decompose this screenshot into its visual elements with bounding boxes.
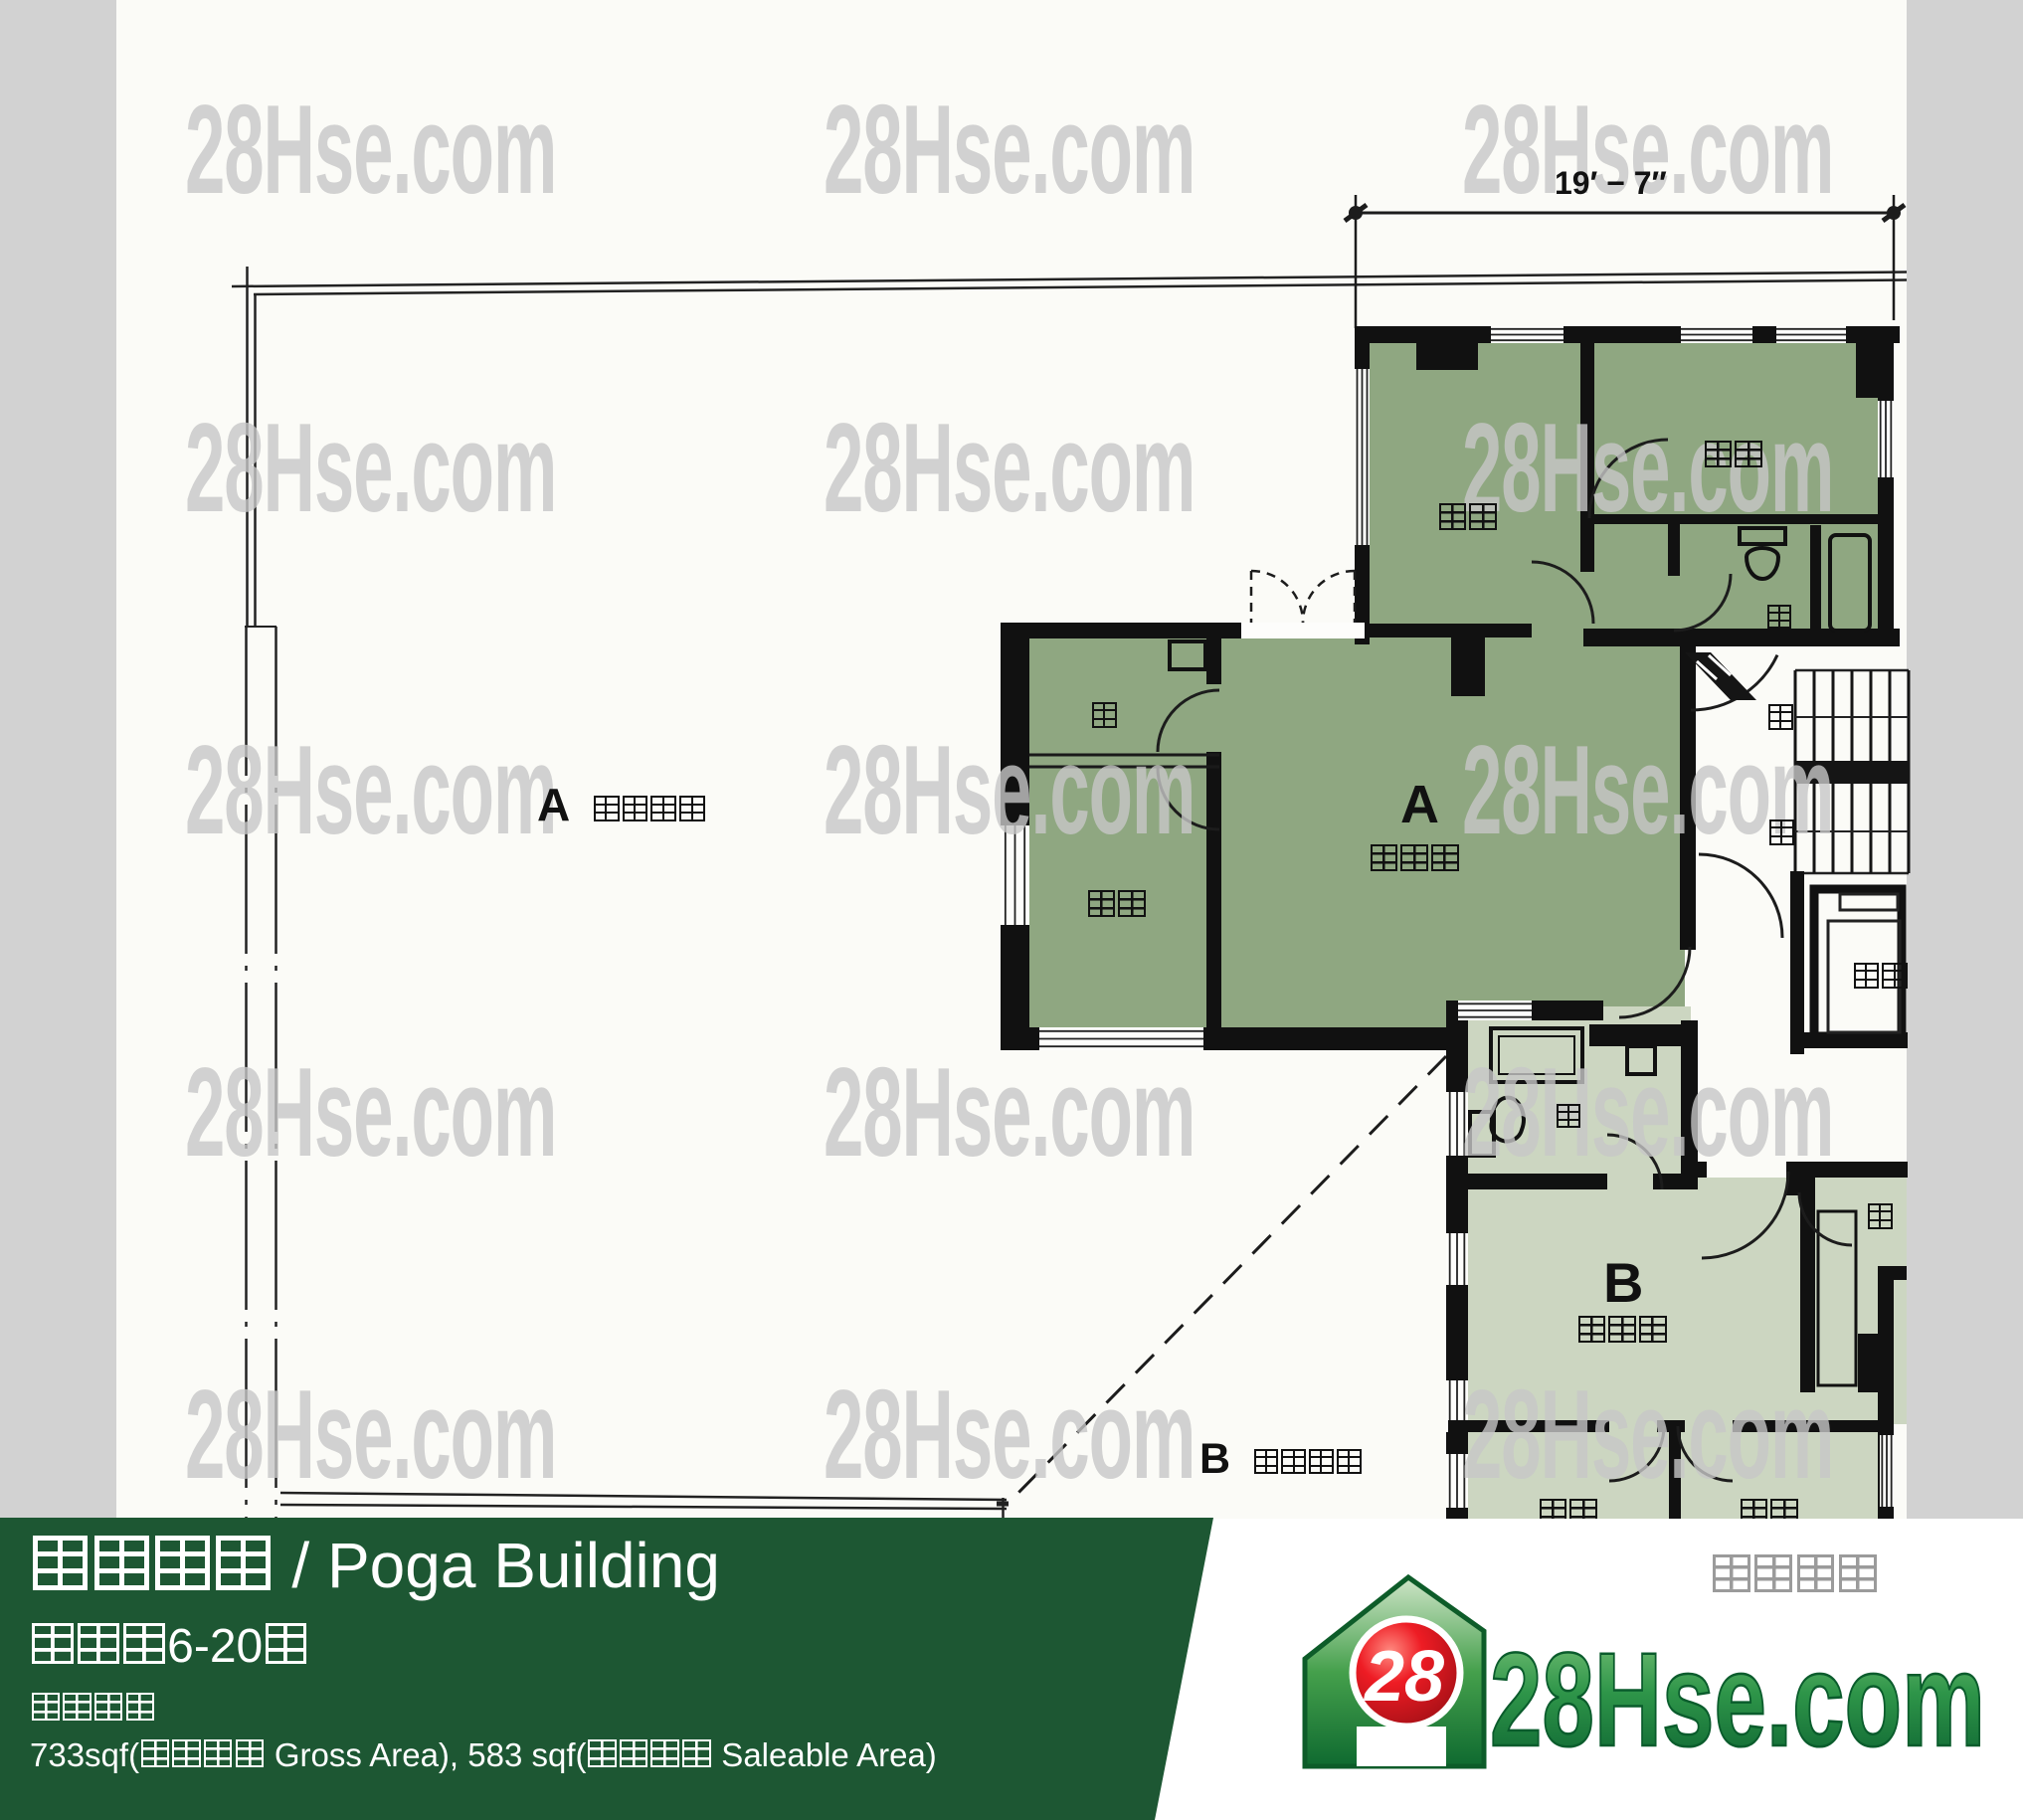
- svg-text:28: 28: [1363, 1637, 1444, 1717]
- svg-text:28Hse.com: 28Hse.com: [1490, 1626, 1985, 1774]
